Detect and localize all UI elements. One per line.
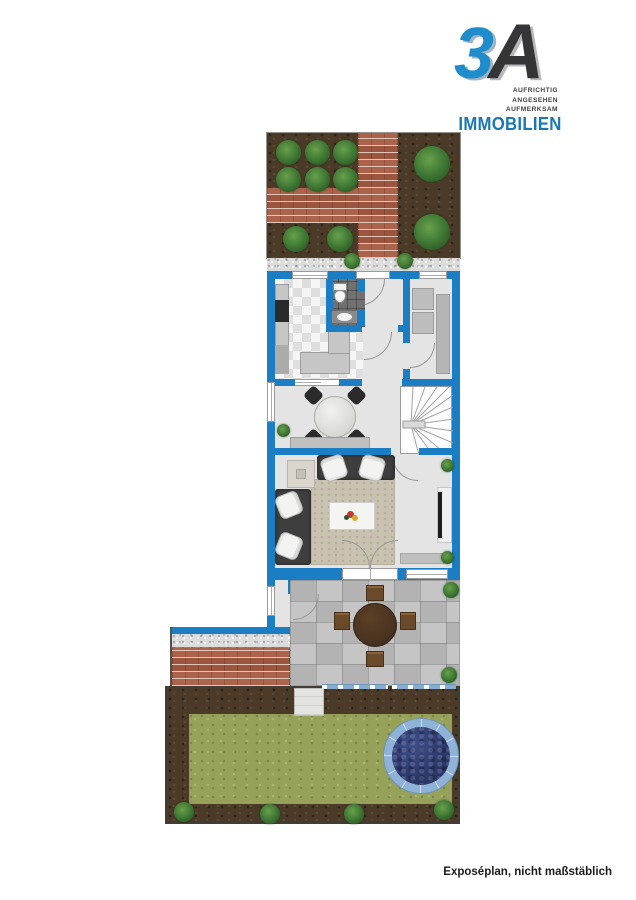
bush [434, 800, 454, 820]
wall-dining-top-3 [402, 379, 452, 386]
terrace-chair [334, 612, 350, 630]
side-passage-window [267, 586, 275, 616]
bush [283, 226, 309, 252]
wall-dining-top-2 [339, 379, 362, 386]
bush [333, 140, 358, 165]
flower-plant [423, 694, 445, 716]
terrace-chair [366, 651, 384, 667]
dining-table [314, 396, 356, 438]
tv [438, 492, 442, 538]
living-window-south [406, 569, 448, 579]
flower-plant [171, 694, 193, 716]
flower-plant [232, 694, 254, 716]
brick-path-vertical [358, 133, 398, 258]
wall-dining-top-1 [275, 379, 295, 386]
kitchen-counter-lower [275, 345, 289, 374]
bush [174, 802, 194, 822]
wall-right [452, 271, 460, 580]
pool-water [392, 727, 450, 785]
garden [165, 686, 460, 824]
staircase [400, 386, 452, 454]
hall-window [419, 271, 447, 279]
logo-brand-text: IMMOBILIEN [452, 114, 567, 135]
logo-tagline-line: AUFRICHTIG [480, 86, 558, 96]
sink-basin [336, 312, 353, 322]
large-bush [414, 146, 450, 182]
logo-tagline-line: ANGESEHEN [480, 96, 558, 106]
staircase-treads [401, 387, 453, 455]
door-mat [400, 553, 446, 564]
table-decor [344, 515, 349, 520]
brick-path-horizontal [267, 188, 358, 223]
terrace-chair [400, 612, 416, 630]
flower-plant [201, 694, 223, 716]
flower-plant [331, 694, 353, 716]
french-door-sill [342, 568, 398, 580]
bush [276, 167, 301, 192]
front-door-opening [356, 271, 390, 279]
kitchen-dining-slider [295, 379, 339, 386]
garden-path [294, 688, 324, 716]
kitchen-window [292, 271, 328, 279]
scale-disclaimer: Exposéplan, nicht maßstäblich [330, 866, 612, 882]
bush [344, 804, 364, 824]
front-garden [267, 133, 460, 258]
bush [305, 140, 330, 165]
logo-letter-a-icon: A [488, 12, 544, 90]
bush [333, 167, 358, 192]
wall-living-top-1 [275, 448, 391, 455]
plant [441, 551, 454, 564]
bush [305, 167, 330, 192]
wardrobe [436, 294, 450, 374]
wall-bath-hall-2 [358, 309, 365, 325]
gravel-strip-side [172, 634, 292, 648]
brick-patio-side [172, 648, 290, 686]
terrace-chair [366, 585, 384, 601]
wall-living-top-2 [419, 448, 452, 455]
logo-letter-3-icon: 3 [454, 18, 494, 90]
plant [443, 582, 459, 598]
dining-window [267, 382, 275, 422]
terrace-table [353, 603, 397, 647]
wall-hall-bottom-a [326, 325, 362, 332]
bush [260, 804, 280, 824]
plant [397, 253, 413, 269]
logo-tagline: AUFRICHTIG ANGESEHEN AUFMERKSAM [480, 86, 558, 115]
lamp [296, 469, 306, 479]
plant [441, 667, 457, 683]
hall-cabinet [412, 288, 434, 310]
bush [327, 226, 353, 252]
kitchen-counter-l1 [300, 352, 350, 374]
large-bush [414, 214, 450, 250]
plant [277, 424, 290, 437]
wall-hall-right-2 [403, 369, 410, 379]
terrace-fence [392, 684, 456, 689]
flower-plant [263, 694, 285, 716]
stove [275, 300, 289, 322]
flower-plant [361, 694, 383, 716]
wall-hall-right-1 [403, 279, 410, 343]
flower-plant [391, 694, 413, 716]
pool [383, 718, 459, 794]
plan-edge-line [170, 627, 172, 686]
terrace-fence [322, 684, 388, 689]
table-decor [352, 515, 358, 521]
plant [344, 253, 360, 269]
plant [441, 459, 454, 472]
bush [276, 140, 301, 165]
wall-garden-west [172, 627, 292, 634]
hall-cabinet [412, 312, 434, 334]
gravel-strip-front [267, 258, 460, 271]
wall-bath-hall-1 [358, 279, 365, 291]
exposeplan-page: A 3 AUFRICHTIG ANGESEHEN AUFMERKSAM IMMO… [0, 0, 636, 900]
company-logo: A 3 AUFRICHTIG ANGESEHEN AUFMERKSAM IMMO… [440, 10, 580, 135]
